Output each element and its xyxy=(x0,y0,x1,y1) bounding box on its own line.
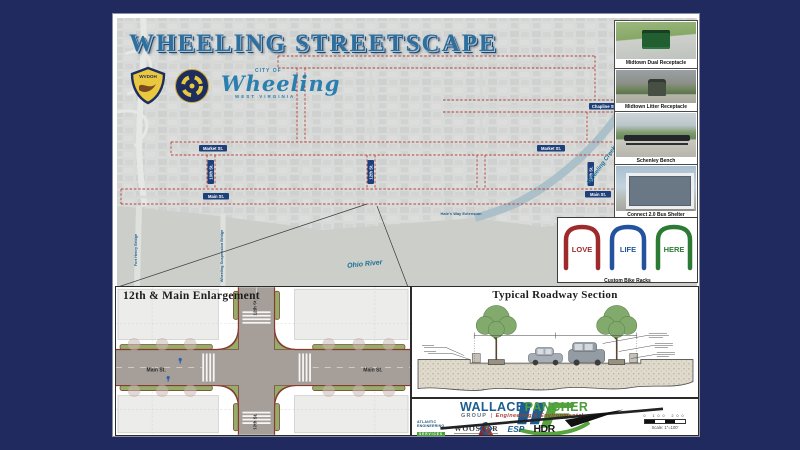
bike-racks-caption: Custom Bike Racks xyxy=(558,278,697,285)
enlargement-12th-st-bottom: 12th St. xyxy=(252,414,257,430)
label-10th: 10th St. xyxy=(208,160,215,184)
custom-bike-racks-box: LOVE LIFE HERE Custom Bike Racks xyxy=(557,217,698,283)
card-caption: Midtown Dual Receptacle xyxy=(616,59,696,67)
card-caption: Midtown Litter Receptacle xyxy=(616,103,696,111)
main-st-left-label: Main St. xyxy=(208,194,224,199)
label-market-right: Market St. xyxy=(537,145,565,152)
dual-receptacle-shape xyxy=(642,30,670,49)
wvdoh-text: WVDOH xyxy=(139,74,157,79)
tenth-st-label: 10th St. xyxy=(209,164,214,179)
car-suv xyxy=(569,343,605,366)
wheeling-script-text: Wheeling xyxy=(221,74,340,94)
midtown-litter-receptacle-photo xyxy=(616,70,696,103)
bike-racks-graphic: LOVE LIFE HERE xyxy=(558,218,697,273)
label-main-right: Main St. xyxy=(585,191,611,198)
scale-ticks: 0 100 200 xyxy=(636,414,694,418)
life-word: LIFE xyxy=(620,245,636,254)
intersection-plan-drawing: Main St. Main St. 12th St. 12th St. xyxy=(116,287,410,435)
midtown-dual-receptacle-photo xyxy=(616,22,696,59)
poster-title: WHEELING STREETSCAPE xyxy=(129,30,529,58)
streetscape-poster-board: Chapline St. Market St. Market St. Main … xyxy=(112,13,700,437)
label-12th: 12th St. xyxy=(368,160,375,184)
product-card-litter-receptacle: Midtown Litter Receptacle xyxy=(614,68,698,113)
north-arrow-head xyxy=(565,409,624,427)
scale-bar-block: 0 100 200 Scale: 1"=100' xyxy=(636,414,694,430)
fort-henry-bridge-label: Fort Henry Bridge xyxy=(134,234,138,266)
enlargement-title: 12th & Main Enlargement xyxy=(123,290,260,302)
twelfth-st-label: 12th St. xyxy=(369,164,374,179)
desktop-background: { "frame": { "background_color": "#212a5… xyxy=(0,0,800,450)
chapline-st-label: Chapline St. xyxy=(592,104,616,109)
roadway-section-drawing xyxy=(412,287,698,397)
product-card-bus-shelter: Connect 2.0 Bus Shelter xyxy=(614,164,698,221)
schenley-bench-photo xyxy=(616,113,696,157)
city-of-wheeling-logo: CITY OF Wheeling WEST VIRGINIA xyxy=(221,68,340,99)
dot-circle-logo xyxy=(173,66,211,106)
car-sedan xyxy=(528,348,562,366)
bench-shape xyxy=(624,135,690,141)
center-dot xyxy=(190,84,195,89)
enlargement-main-st-left: Main St. xyxy=(147,368,167,374)
love-word: LOVE xyxy=(572,245,592,254)
scale-bar xyxy=(644,419,686,424)
label-market-left: Market St. xyxy=(199,145,227,152)
header-logo-row: WVDOH CITY OF Wheeling WEST VIRGINIA xyxy=(129,66,340,114)
product-card-bench: Schenley Bench xyxy=(614,111,698,167)
product-card-dual-receptacle: Midtown Dual Receptacle xyxy=(614,20,698,69)
here-word: HERE xyxy=(664,245,685,254)
litter-receptacle-shape xyxy=(648,79,666,96)
wvdoh-shield-logo: WVDOH xyxy=(129,66,167,106)
market-st-right-label: Market St. xyxy=(541,146,561,151)
scale-label: Scale: 1"=100' xyxy=(636,425,694,430)
enlargement-panel: Main St. Main St. 12th St. 12th St. 12th… xyxy=(115,286,411,436)
market-st-left-label: Market St. xyxy=(203,146,223,151)
roadway-section-title: Typical Roadway Section xyxy=(412,289,698,301)
tree-left xyxy=(476,305,516,364)
label-main-left: Main St. xyxy=(203,193,229,200)
bus-shelter-shape xyxy=(626,173,694,209)
extension-label: Hale's Way Extension xyxy=(440,211,482,216)
roadway-section-panel: Typical Roadway Section xyxy=(411,286,699,398)
main-st-right-label: Main St. xyxy=(590,192,606,197)
enlargement-main-st-right: Main St. xyxy=(363,368,383,374)
footer-panel: WALLACEPANCHER GROUP | Engineering & Env… xyxy=(411,398,699,436)
bus-shelter-photo xyxy=(616,166,696,211)
suspension-bridge-label: Wheeling Suspension Bridge xyxy=(220,230,224,283)
